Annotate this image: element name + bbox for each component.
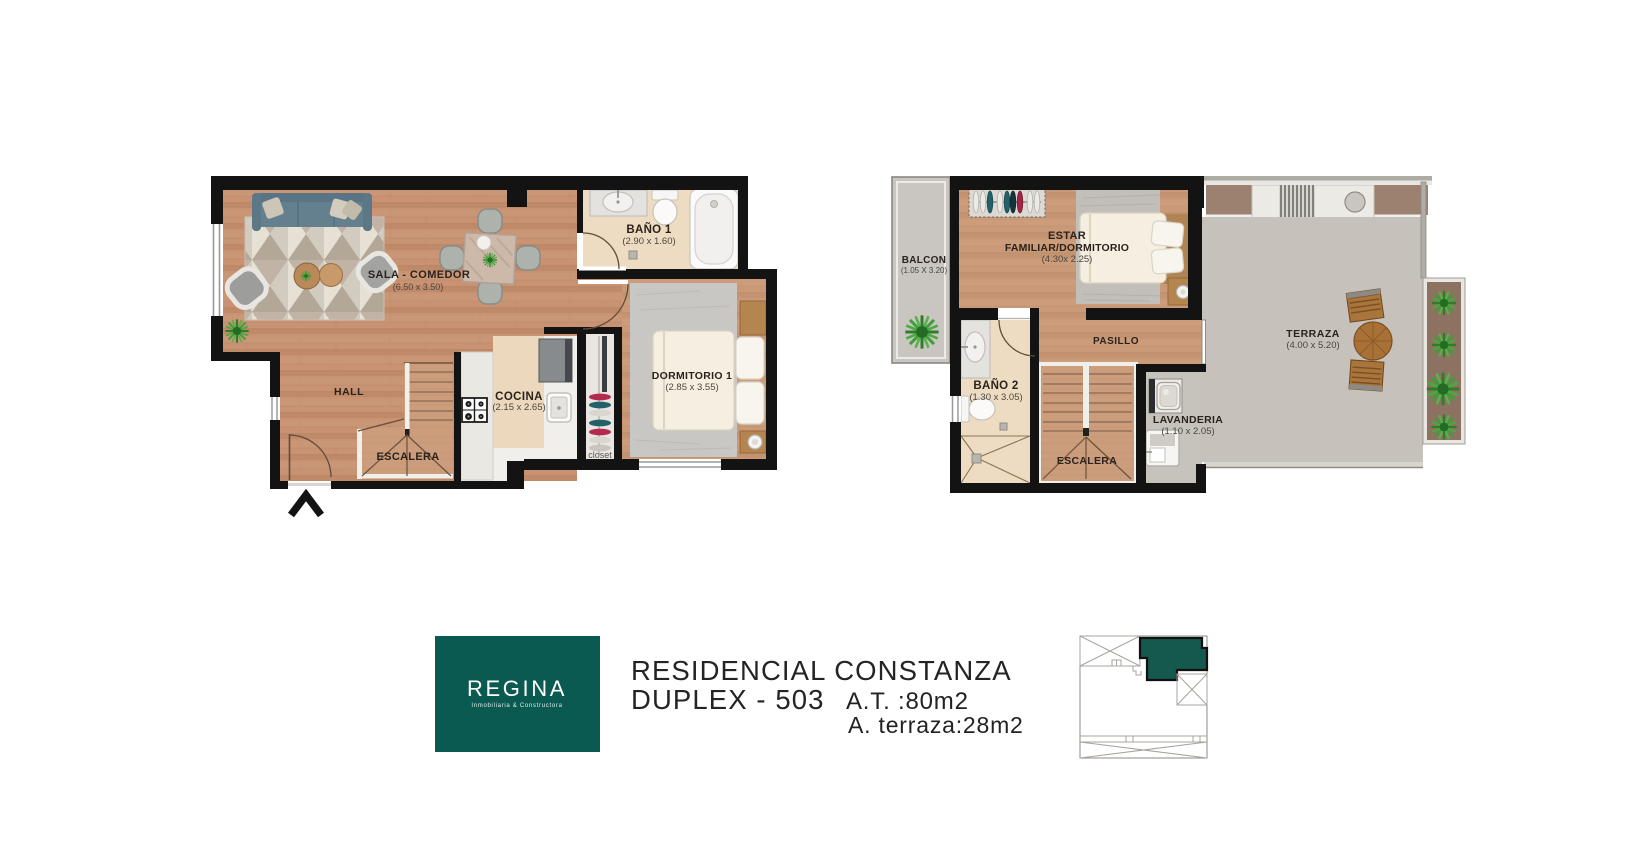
svg-text:REGINA: REGINA [467, 676, 567, 701]
svg-text:SALA - COMEDOR: SALA - COMEDOR [368, 269, 470, 281]
svg-text:PASILLO: PASILLO [1093, 336, 1139, 347]
svg-text:(4.00 x 5.20): (4.00 x 5.20) [1286, 340, 1339, 351]
svg-text:LAVANDERIA: LAVANDERIA [1153, 414, 1223, 426]
svg-text:(1.30 x 3.05): (1.30 x 3.05) [969, 392, 1022, 403]
svg-text:FAMILIAR/DORMITORIO: FAMILIAR/DORMITORIO [1005, 242, 1129, 254]
svg-text:(1.10 x 2.05): (1.10 x 2.05) [1161, 426, 1214, 437]
svg-text:(6.50 x 3.50): (6.50 x 3.50) [393, 282, 444, 292]
svg-text:HALL: HALL [334, 386, 364, 398]
svg-text:Inmobiliaria & Constructora: Inmobiliaria & Constructora [471, 703, 562, 709]
svg-text:BAÑO 2: BAÑO 2 [973, 379, 1018, 392]
svg-text:(4.30x 2.25): (4.30x 2.25) [1042, 254, 1093, 265]
svg-text:(2.90 x 1.60): (2.90 x 1.60) [622, 236, 675, 247]
svg-text:A. terraza:28m2: A. terraza:28m2 [848, 712, 1024, 738]
svg-text:DUPLEX - 503: DUPLEX - 503 [631, 684, 825, 715]
svg-text:ESCALERA: ESCALERA [377, 451, 440, 463]
svg-text:DORMITORIO 1: DORMITORIO 1 [652, 370, 732, 382]
svg-text:(2.15 x 2.65): (2.15 x 2.65) [492, 402, 545, 413]
svg-text:RESIDENCIAL CONSTANZA: RESIDENCIAL CONSTANZA [631, 655, 1012, 686]
svg-text:A.T. :80m2: A.T. :80m2 [846, 688, 969, 715]
svg-text:(2.85 x 3.55): (2.85 x 3.55) [665, 382, 718, 393]
svg-text:(1.05 X 3.20): (1.05 X 3.20) [901, 266, 948, 275]
svg-text:BALCON: BALCON [902, 255, 947, 266]
svg-text:BAÑO 1: BAÑO 1 [626, 223, 672, 236]
svg-text:ESTAR: ESTAR [1048, 230, 1086, 242]
svg-text:closet: closet [588, 450, 612, 460]
svg-text:TERRAZA: TERRAZA [1286, 328, 1340, 340]
svg-text:ESCALERA: ESCALERA [1057, 455, 1117, 467]
